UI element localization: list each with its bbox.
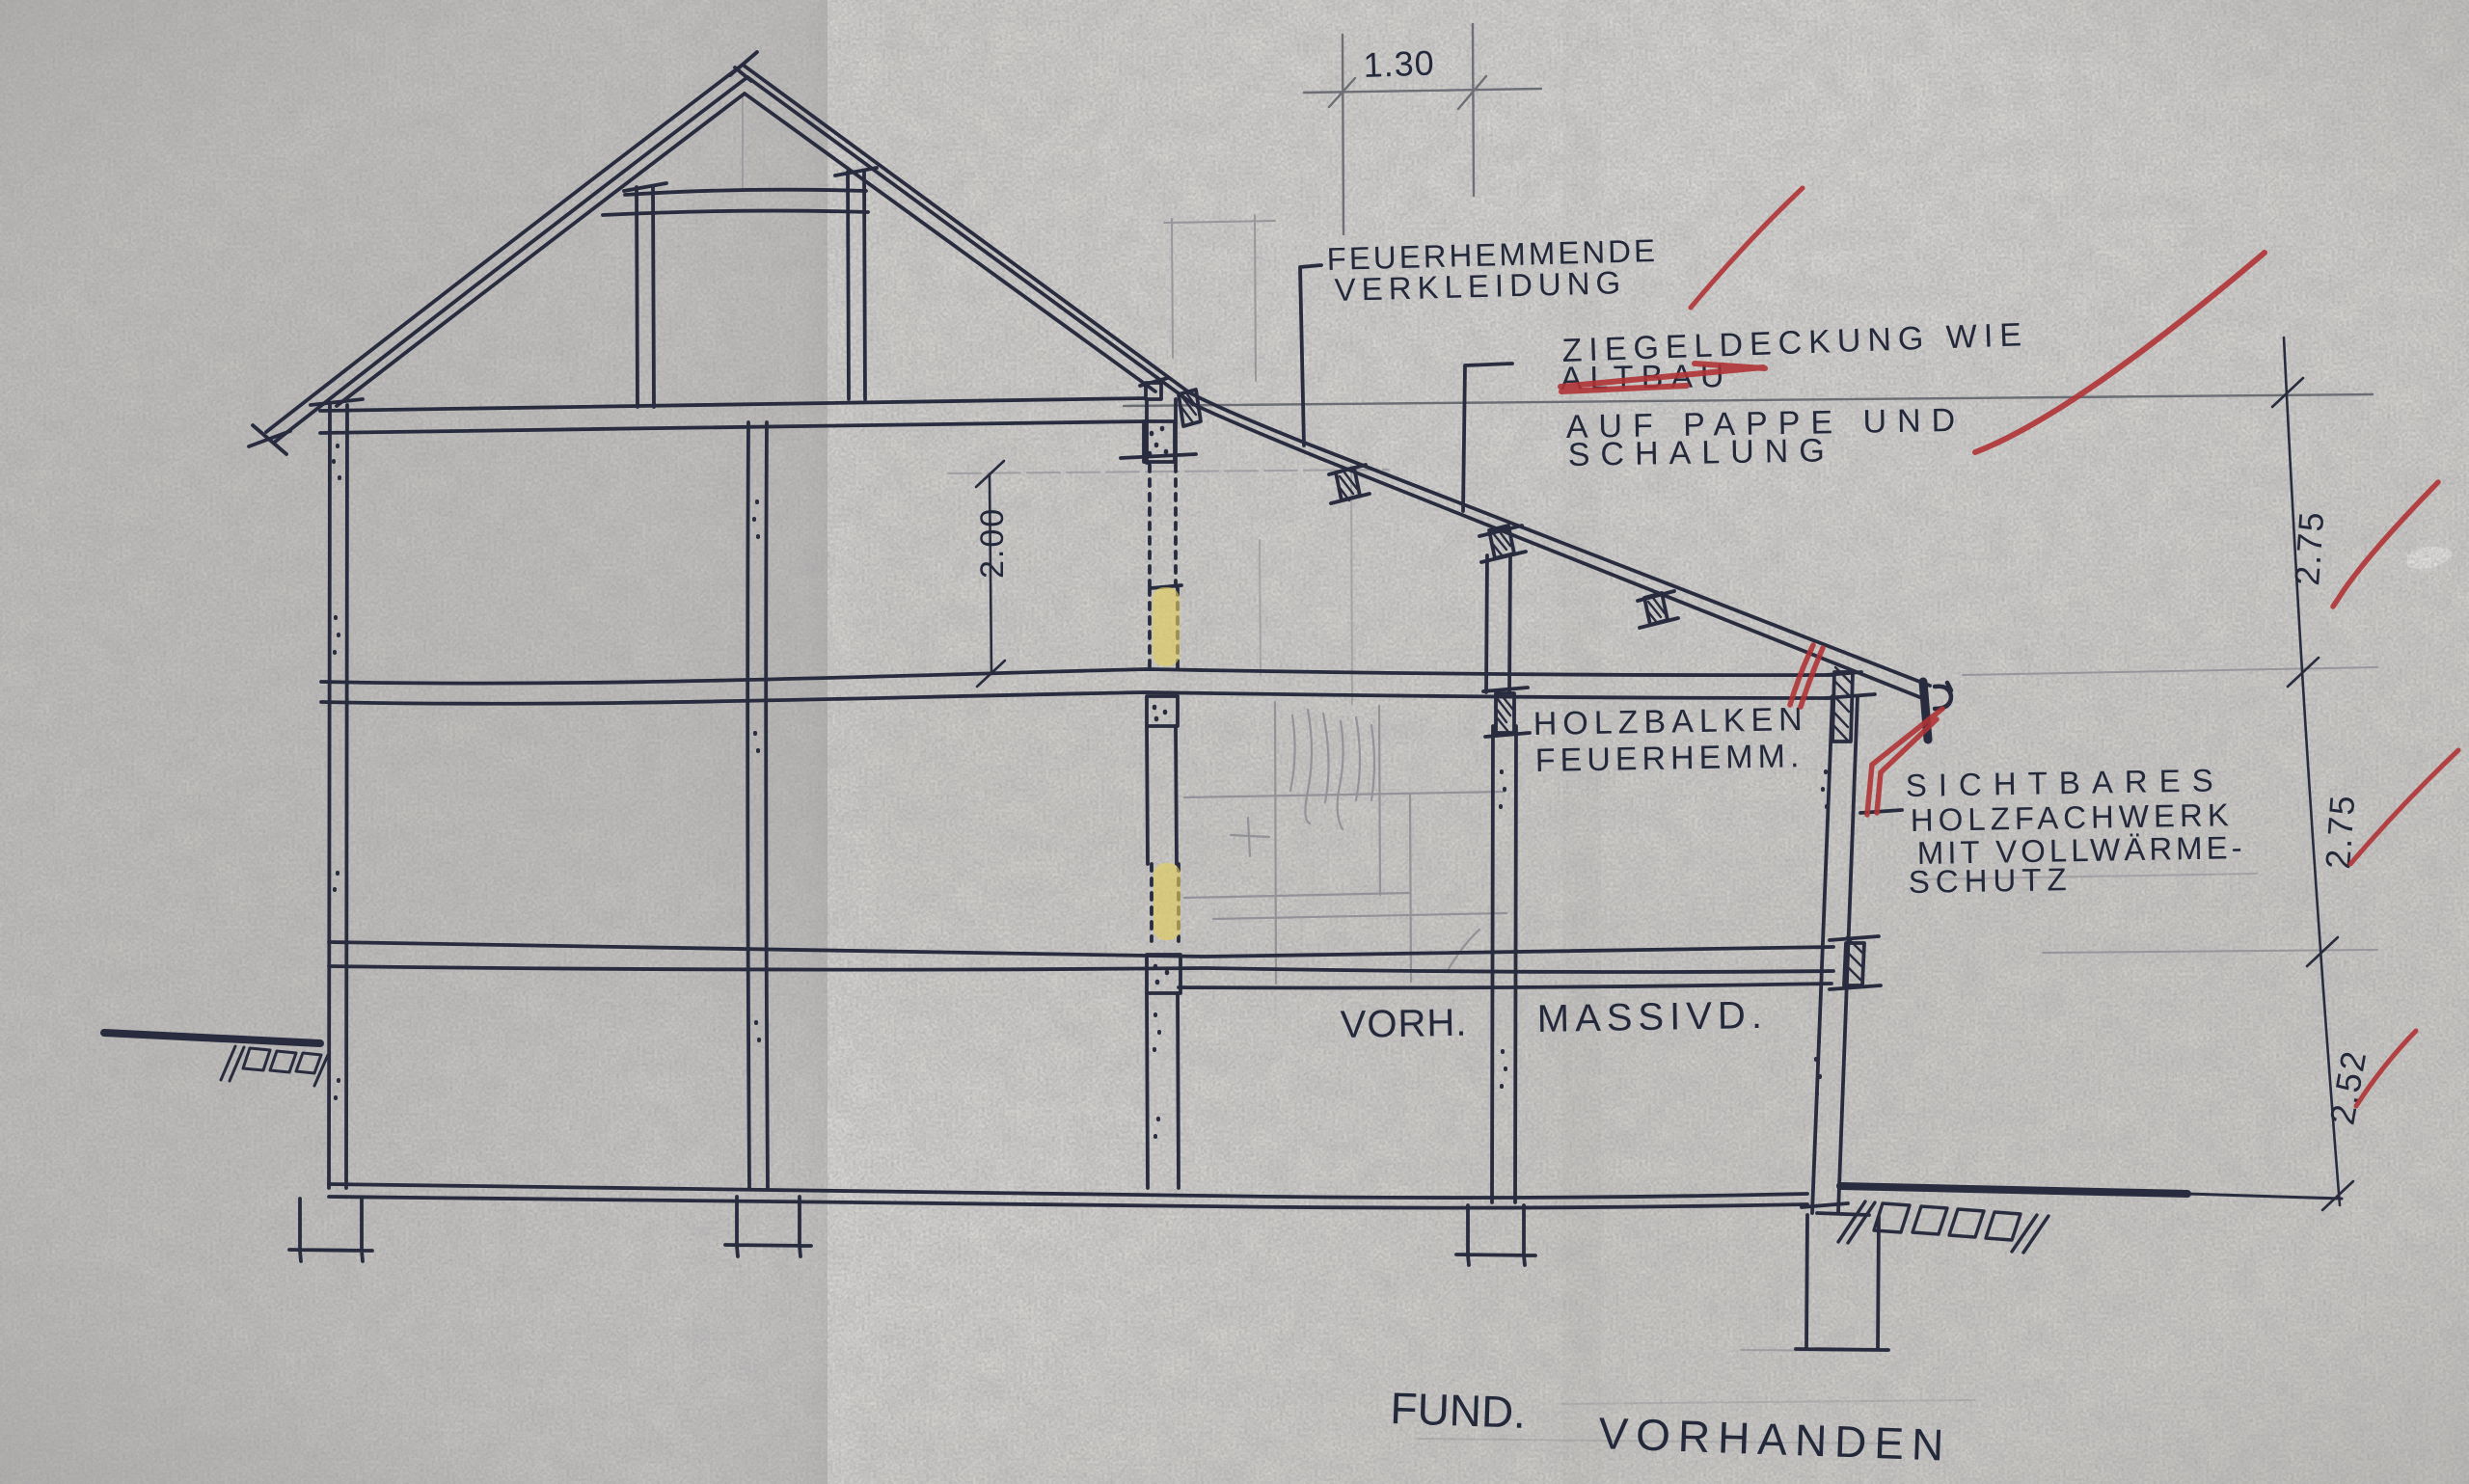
svg-text:FEUERHEMM.: FEUERHEMM. <box>1534 738 1804 779</box>
svg-text:FUND.: FUND. <box>1390 1383 1527 1438</box>
svg-text:HOLZBALKEN: HOLZBALKEN <box>1533 701 1807 742</box>
svg-text:SCHUTZ: SCHUTZ <box>1908 861 2072 900</box>
svg-text:SCHALUNG: SCHALUNG <box>1567 432 1835 473</box>
svg-text:2.00: 2.00 <box>974 507 1011 579</box>
svg-text:VERKLEIDUNG: VERKLEIDUNG <box>1334 264 1626 308</box>
svg-text:2.75: 2.75 <box>2287 509 2331 587</box>
svg-text:1.30: 1.30 <box>1363 42 1435 85</box>
svg-text:VORH.: VORH. <box>1340 1002 1467 1046</box>
svg-text:MASSIVD.: MASSIVD. <box>1536 994 1768 1040</box>
